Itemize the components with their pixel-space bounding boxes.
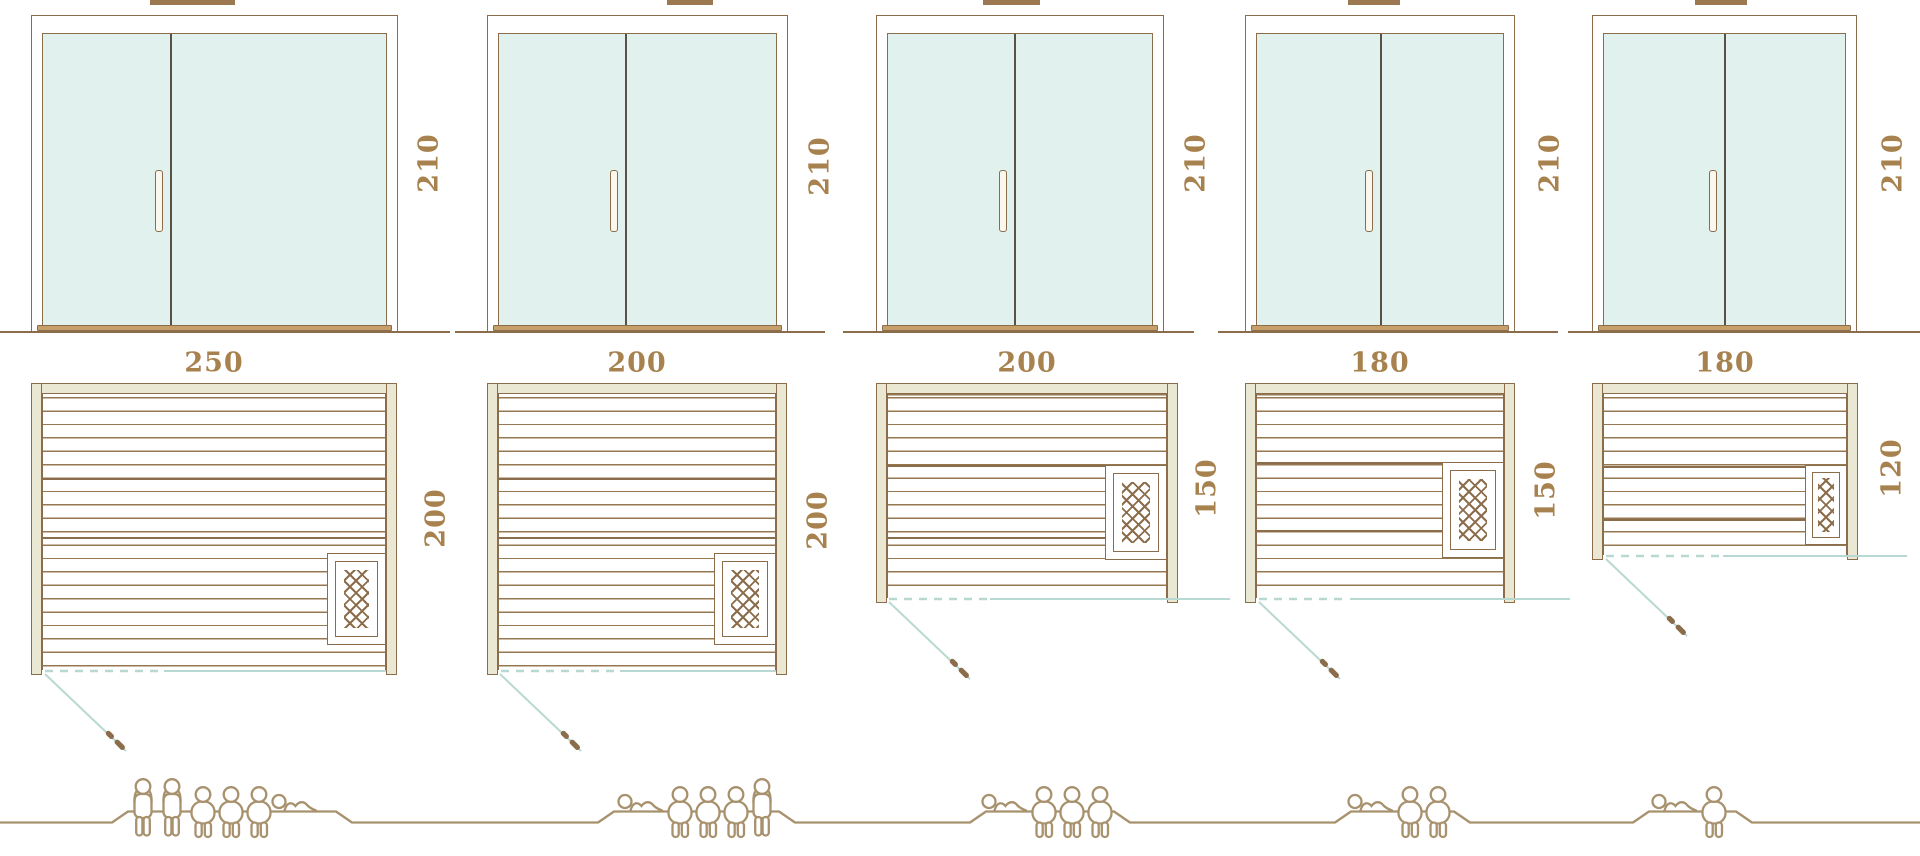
heater-grid-5 [1818,478,1834,532]
person-seated-icon [697,787,720,837]
plan-bench-edge-2-2 [499,537,775,539]
person-seated-icon [1089,787,1112,837]
plan-wall-right-1 [386,383,397,675]
door-handle-3 [999,170,1007,232]
person-reclining-icon [619,795,663,811]
plan-width-label-3: 200 [997,350,1056,377]
capacity-group-1 [134,779,316,837]
door-height-label-1: 210 [416,133,443,192]
person-seated-icon [1399,787,1422,837]
door-swing-line-2 [500,674,581,751]
heater-grid-4 [1459,479,1487,541]
plan-wall-left-2 [487,383,498,675]
plan-width-label-1: 250 [184,350,243,377]
person-seated-icon [192,787,215,837]
person-reclining-icon [983,795,1027,811]
door-height-label-2: 210 [807,136,834,195]
capacity-group-3 [983,787,1112,837]
door-handle-5 [1709,170,1717,232]
sauna-dimension-diagram: 2102102102102102502002002002001501801501… [0,0,1920,856]
door-swing-line-3 [889,602,970,679]
plan-door-handle-icon-2 [560,730,581,751]
person-reclining-icon [1349,795,1393,811]
plan-door-handle-icon-1 [105,730,126,751]
person-reclining-icon [1653,795,1697,811]
plan-depth-label-4: 150 [1533,460,1560,519]
door-divider-2 [625,34,627,325]
plan-door-handle-icon-4 [1319,658,1340,679]
plan-wall-top-5 [1592,383,1858,394]
person-seated-icon [1703,787,1726,837]
person-seated-icon [248,787,271,837]
heater-grid-3 [1122,482,1150,543]
plan-depth-label-5: 120 [1879,438,1906,497]
person-seated-icon [1033,787,1056,837]
door-glass-3 [887,33,1153,326]
heater-grid-1 [344,570,369,628]
plan-wall-top-1 [31,383,397,394]
person-standing-icon [134,779,151,835]
door-roof-vent-2 [667,0,713,5]
door-divider-1 [170,34,172,325]
door-handle-4 [1365,170,1373,232]
person-seated-icon [1061,787,1084,837]
plan-depth-label-2: 200 [805,490,832,549]
door-swing-line-1 [45,674,126,751]
person-seated-icon [725,787,748,837]
person-seated-icon [669,787,692,837]
door-roof-vent-4 [1348,0,1400,5]
door-sill-3 [882,325,1158,331]
plan-bench-edge-1-1 [43,478,385,480]
door-roof-vent-5 [1695,0,1747,5]
door-sill-4 [1251,325,1509,331]
capacity-group-2 [619,779,771,837]
capacity-group-4 [1349,787,1450,837]
plan-wall-top-4 [1245,383,1515,394]
door-roof-vent-3 [983,0,1040,5]
door-swing-line-4 [1259,602,1340,679]
plan-depth-label-3: 150 [1194,458,1221,517]
capacity-baseline-platforms [0,812,1920,823]
door-handle-1 [155,170,163,232]
door-height-label-4: 210 [1537,133,1564,192]
plan-wall-right-4 [1504,383,1515,603]
door-divider-5 [1724,34,1726,325]
plan-door-handle-icon-3 [949,658,970,679]
plan-depth-label-1: 200 [423,488,450,547]
door-handle-2 [610,170,618,232]
person-seated-icon [1427,787,1450,837]
heater-grid-2 [731,570,759,628]
person-standing-icon [163,779,180,835]
person-standing-icon [753,779,770,835]
door-glass-1 [42,33,387,326]
plan-wall-top-3 [876,383,1178,394]
door-sill-1 [37,325,392,331]
door-height-label-5: 210 [1880,133,1907,192]
plan-width-label-2: 200 [607,350,666,377]
plan-width-label-4: 180 [1350,350,1409,377]
plan-wall-right-2 [776,383,787,675]
capacity-group-5 [1653,787,1726,837]
plan-bench-edge-1-2 [43,537,385,539]
door-divider-4 [1380,34,1382,325]
plan-wall-left-5 [1592,383,1603,560]
door-glass-2 [498,33,777,326]
plan-wall-left-4 [1245,383,1256,603]
plan-wall-left-3 [876,383,887,603]
door-divider-3 [1014,34,1016,325]
plan-wall-right-3 [1167,383,1178,603]
plan-wall-top-2 [487,383,787,394]
door-sill-5 [1598,325,1851,331]
plan-bench-edge-2-1 [499,478,775,480]
door-swing-line-5 [1606,559,1687,636]
person-reclining-icon [273,795,317,811]
plan-door-handle-icon-5 [1666,615,1687,636]
door-height-label-3: 210 [1183,133,1210,192]
door-roof-vent-1 [150,0,235,5]
plan-width-label-5: 180 [1695,350,1754,377]
plan-wall-left-1 [31,383,42,675]
plan-wall-right-5 [1847,383,1858,560]
door-sill-2 [493,325,782,331]
person-seated-icon [220,787,243,837]
